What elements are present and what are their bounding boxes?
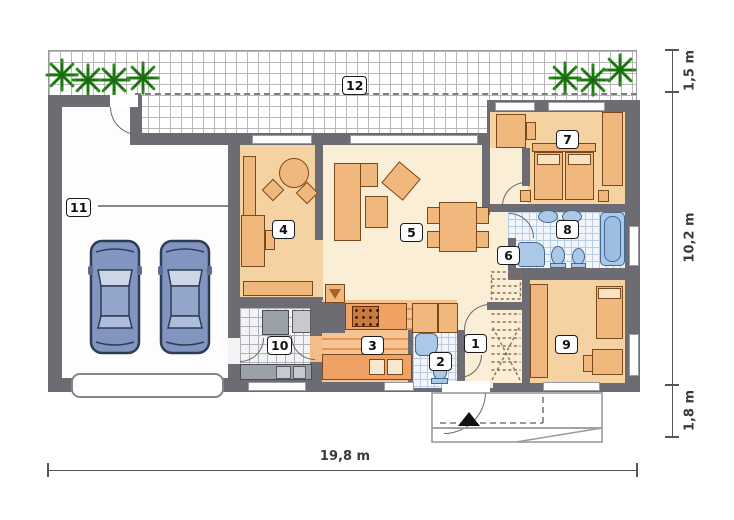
- wall-living-corridor: [482, 145, 490, 215]
- kitchen-sink: [369, 359, 385, 375]
- dining-table: [439, 202, 477, 252]
- room-label-wc: 2: [429, 352, 452, 371]
- floor-plan: 19,8 m 1,5 m 10,2 m 1,8 m 1 2 3 4 5 6 7 …: [0, 0, 734, 520]
- wardrobe: [602, 112, 623, 186]
- utility-unit: [276, 366, 291, 379]
- utility-unit: [293, 366, 306, 379]
- cooktop: [352, 306, 379, 327]
- dimension-label-house: 10,2 m: [683, 208, 698, 268]
- pillow: [598, 288, 621, 299]
- nightstand: [598, 190, 609, 202]
- floor-opening-office-living: [315, 240, 323, 297]
- entrance-porch: [430, 392, 608, 448]
- dimension-line-right: [672, 50, 673, 437]
- dimension-tick: [665, 436, 679, 438]
- coffee-table: [365, 196, 388, 228]
- room-label-utility: 10: [267, 336, 292, 355]
- chair: [427, 207, 440, 224]
- room-label-living-room: 5: [400, 223, 423, 242]
- room-label-terrace: 12: [342, 76, 367, 95]
- room-label-corridor: 6: [497, 246, 520, 265]
- dimension-tick: [47, 463, 49, 477]
- dryer: [292, 310, 311, 333]
- door-opening: [228, 338, 240, 364]
- dimension-label-terrace: 1,5 m: [683, 41, 698, 101]
- chair: [526, 122, 536, 140]
- bathroom-sink: [538, 210, 558, 223]
- desk: [592, 349, 623, 375]
- sideboard: [243, 281, 313, 296]
- car-icon: [158, 238, 212, 356]
- fireplace-triangle-icon: [329, 289, 341, 299]
- garage-door: [71, 373, 224, 398]
- room-label-kitchen: 3: [361, 336, 384, 355]
- garage-storage-line: [98, 205, 228, 207]
- dimension-tick: [636, 463, 638, 477]
- room-label-hall: 1: [464, 334, 487, 353]
- window: [548, 102, 605, 111]
- terrace-door-opening: [110, 95, 138, 107]
- window: [495, 102, 535, 111]
- room-label-bedroom-2: 9: [555, 335, 578, 354]
- window: [629, 226, 639, 266]
- dimension-tick: [665, 384, 679, 386]
- chair: [476, 231, 489, 248]
- dimension-label-porch: 1,8 m: [683, 381, 698, 441]
- window: [629, 334, 639, 376]
- toilet-tank: [431, 378, 448, 384]
- staircase: [490, 270, 522, 383]
- dimension-line-bottom: [48, 470, 637, 471]
- desk: [496, 114, 526, 148]
- car-icon: [88, 238, 142, 356]
- desk: [241, 215, 265, 267]
- sofa: [334, 163, 361, 241]
- toilet-tank: [550, 263, 566, 268]
- wall-stair-landing: [487, 302, 522, 310]
- dimension-label-width: 19,8 m: [300, 448, 390, 464]
- window-terrace: [350, 135, 478, 144]
- nightstand: [520, 190, 531, 202]
- wall-segment: [522, 280, 530, 383]
- room-label-bedroom-1: 7: [556, 130, 579, 149]
- wall-segment: [522, 148, 530, 186]
- pillow: [568, 154, 591, 165]
- kitchen-sink: [387, 359, 403, 375]
- fireplace: [325, 284, 345, 303]
- entrance-arrow-icon: [458, 412, 480, 426]
- chair: [476, 207, 489, 224]
- plant-icon: [603, 53, 637, 87]
- window: [252, 135, 312, 144]
- chimney-wall: [315, 302, 345, 333]
- front-door-opening: [442, 381, 490, 392]
- shower: [518, 242, 545, 267]
- room-label-bathroom: 8: [556, 220, 579, 239]
- kitchen-cabinet: [438, 303, 458, 333]
- wardrobe: [530, 284, 548, 378]
- bidet-tank: [571, 263, 586, 268]
- chair: [427, 231, 440, 248]
- dimension-tick: [665, 49, 679, 51]
- window: [384, 382, 414, 391]
- bathtub-inner: [604, 216, 621, 262]
- wall-segment: [228, 297, 322, 308]
- pillow: [537, 154, 560, 165]
- kitchen-cabinet: [412, 303, 438, 333]
- wall-segment: [508, 268, 625, 280]
- plant-icon: [126, 61, 160, 95]
- room-label-office: 4: [272, 220, 295, 239]
- washing-machine: [262, 310, 289, 335]
- window: [543, 382, 600, 391]
- dimension-tick: [665, 91, 679, 93]
- room-label-garage: 11: [66, 198, 91, 217]
- chair: [583, 355, 593, 372]
- window: [248, 382, 306, 391]
